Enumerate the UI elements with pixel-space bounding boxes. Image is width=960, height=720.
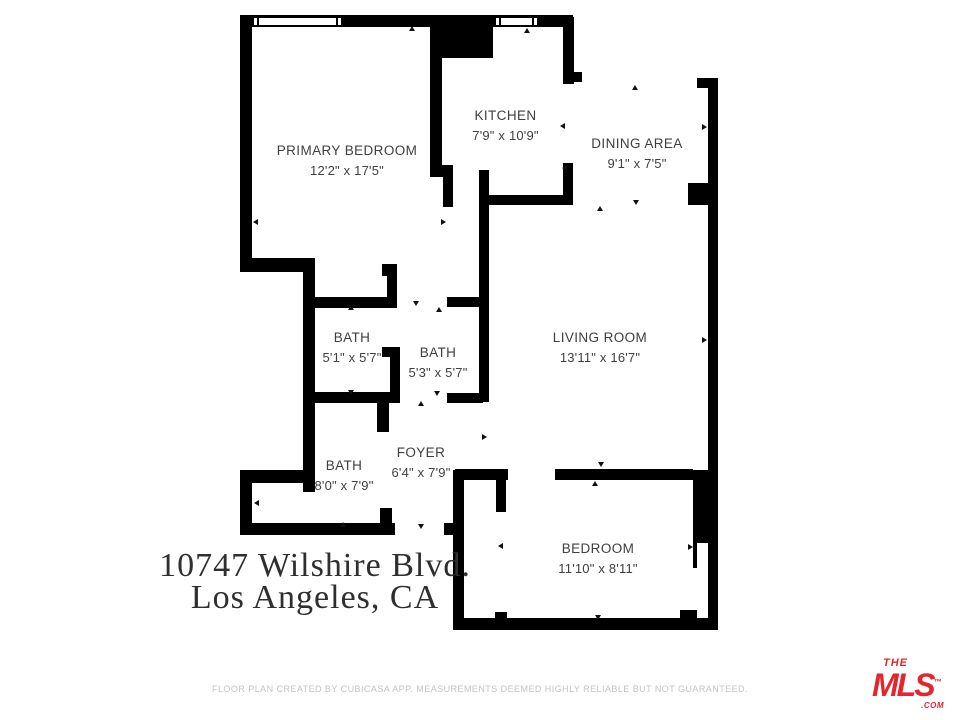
wall-segment [240,15,252,272]
wall-segment [697,78,718,88]
opening-marker-icon [592,481,598,486]
wall-segment [708,543,718,630]
opening-marker-icon [348,390,354,395]
wall-segment [555,469,693,480]
room-label-primary-bedroom: PRIMARY BEDROOM 12'2" x 17'5" [252,143,442,178]
opening-marker-icon [418,401,424,406]
address-line-2: Los Angeles, CA [75,582,555,614]
wall-segment [688,183,708,205]
room-dimensions: 7'9" x 10'9" [472,128,538,143]
themls-logo: THE MLS™ .COM [872,658,952,710]
floor-plan: PRIMARY BEDROOM 12'2" x 17'5" KITCHEN 7'… [240,15,720,630]
wall-segment [447,297,483,307]
disclaimer-text: FLOOR PLAN CREATED BY CUBICASA APP. MEAS… [0,684,960,694]
opening-marker-icon [498,543,503,549]
room-name: BATH [326,458,363,473]
opening-marker-icon [632,85,638,90]
wall-segment [708,78,718,543]
room-name: KITCHEN [474,108,536,123]
wall-segment [479,170,489,307]
room-label-dining-area: DINING AREA 9'1" x 7'5" [567,136,707,171]
room-dimensions: 11'10" x 8'11" [558,561,637,576]
opening-marker-icon [413,301,419,306]
room-label-foyer: FOYER 6'4" x 7'9" [385,445,457,480]
wall-segment [496,469,506,512]
room-label-kitchen: KITCHEN 7'9" x 10'9" [448,108,563,143]
opening-marker-icon [598,462,604,467]
room-name: DINING AREA [591,136,682,151]
address-line-1: 10747 Wilshire Blvd. [75,550,555,582]
opening-marker-icon [340,522,346,527]
room-name: BEDROOM [562,541,635,556]
logo-mls-text: MLS™ [872,669,952,701]
wall-segment [447,393,483,403]
room-dimensions: 5'3" x 5'7" [408,365,467,380]
property-address: 10747 Wilshire Blvd. Los Angeles, CA [75,550,555,614]
wall-segment [693,543,697,568]
window [253,17,342,26]
opening-marker-icon [418,524,424,529]
logo-com-text: .COM [872,702,944,710]
room-name: PRIMARY BEDROOM [277,143,418,158]
room-name: FOYER [397,445,446,460]
wall-segment [443,170,453,207]
wall-segment [563,72,582,82]
room-label-bath-lower: BATH 8'0" x 7'9" [300,458,388,493]
wall-segment [680,610,697,620]
room-dimensions: 13'11" x 16'7" [560,350,640,365]
wall-segment [303,258,315,492]
opening-marker-icon [597,206,603,211]
room-name: LIVING ROOM [553,330,647,345]
room-dimensions: 12'2" x 17'5" [310,163,384,178]
opening-marker-icon [436,307,442,312]
room-label-living-room: LIVING ROOM 13'11" x 16'7" [495,330,705,365]
room-label-bath-middle: BATH 5'3" x 5'7" [398,345,478,380]
room-name: BATH [420,345,457,360]
logo-mls-word: MLS [872,667,934,703]
wall-segment [387,264,397,308]
opening-marker-icon [482,434,487,440]
wall-segment [479,307,489,402]
room-label-bath-upper: BATH 5'1" x 5'7" [312,330,392,365]
room-name: BATH [334,330,371,345]
room-dimensions: 8'0" x 7'9" [314,478,373,493]
opening-marker-icon [409,26,415,31]
opening-marker-icon [524,28,530,33]
opening-marker-icon [688,544,693,550]
logo-trademark: ™ [934,677,942,686]
opening-marker-icon [441,219,446,225]
wall-segment [377,398,389,432]
wall-segment [693,470,708,543]
wall-segment [436,25,493,58]
wall-segment [380,508,392,535]
room-dimensions: 9'1" x 7'5" [607,156,666,171]
opening-marker-icon [702,124,707,130]
opening-marker-icon [253,219,258,225]
opening-marker-icon [595,615,601,620]
wall-segment [240,523,395,535]
opening-marker-icon [348,305,354,310]
wall-segment [453,618,718,630]
room-dimensions: 5'1" x 5'7" [322,350,381,365]
window [495,17,538,26]
opening-marker-icon [254,500,259,506]
opening-marker-icon [633,200,639,205]
room-dimensions: 6'4" x 7'9" [391,465,450,480]
opening-marker-icon [434,391,440,396]
wall-segment [485,195,573,205]
